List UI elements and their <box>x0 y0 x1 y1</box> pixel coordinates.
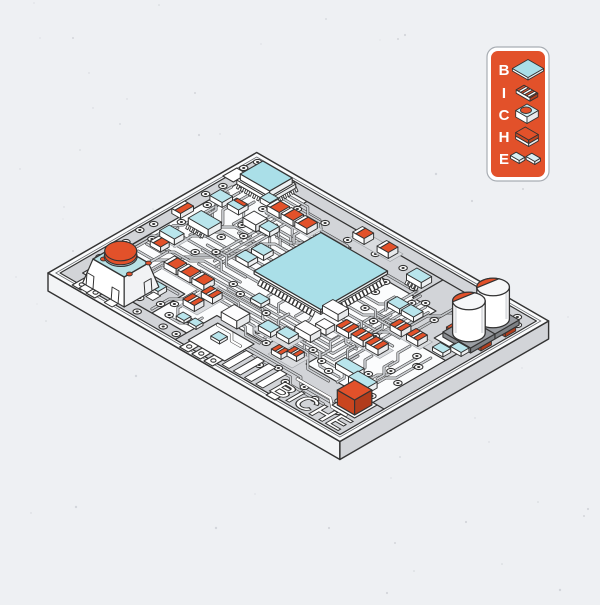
svg-text:E: E <box>499 151 509 168</box>
svg-text:H: H <box>499 129 510 146</box>
svg-text:B: B <box>499 62 510 79</box>
svg-text:I: I <box>502 85 506 102</box>
svg-text:C: C <box>499 107 510 124</box>
